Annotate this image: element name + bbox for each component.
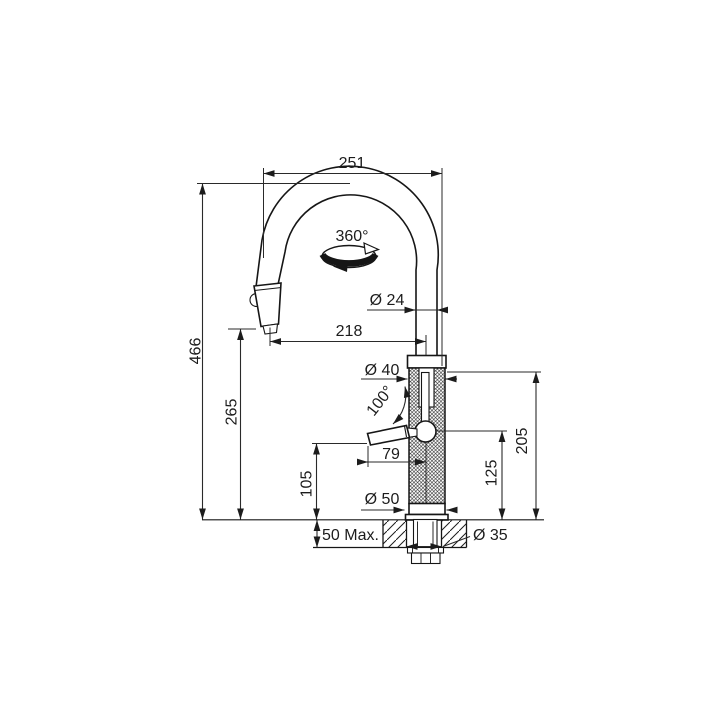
faucet-dimension-drawing: 360° 251 466 265 218 Ø 24 Ø 40 100° <box>0 0 720 720</box>
dim-d35-label: Ø 35 <box>473 527 508 544</box>
dim-125-label: 125 <box>484 460 501 487</box>
dim-265-label: 265 <box>224 399 241 426</box>
dim-d24-label: Ø 24 <box>370 292 405 309</box>
base-ring <box>409 504 445 515</box>
faucet-outline <box>250 166 448 520</box>
dim-d40-label: Ø 40 <box>365 362 400 379</box>
counter-hatch-left <box>383 520 407 547</box>
body-cap <box>408 356 447 369</box>
dim-251-label: 251 <box>339 155 366 172</box>
dim-466-label: 466 <box>188 338 205 365</box>
dim-205-label: 205 <box>514 428 531 455</box>
dim-218-label: 218 <box>336 323 363 340</box>
dimensions: 251 466 265 218 Ø 24 Ø 40 100° 79 <box>188 155 542 548</box>
technical-drawing-canvas: 360° 251 466 265 218 Ø 24 Ø 40 100° <box>0 0 720 720</box>
swivel-angle-label: 360° <box>335 228 368 245</box>
dim-100deg-label: 100° <box>364 383 398 420</box>
counter-hatch-right <box>442 520 467 547</box>
dim-79-label: 79 <box>382 446 400 463</box>
dim-105-label: 105 <box>299 471 316 498</box>
dim-50max-label: 50 Max. <box>322 527 379 544</box>
dim-d50-label: Ø 50 <box>365 491 400 508</box>
lever-boss <box>415 421 436 442</box>
cartridge-rod <box>422 373 430 424</box>
swivel-symbol: 360° <box>322 228 379 272</box>
lever-handle <box>368 426 410 446</box>
mounting-nut <box>412 553 441 564</box>
